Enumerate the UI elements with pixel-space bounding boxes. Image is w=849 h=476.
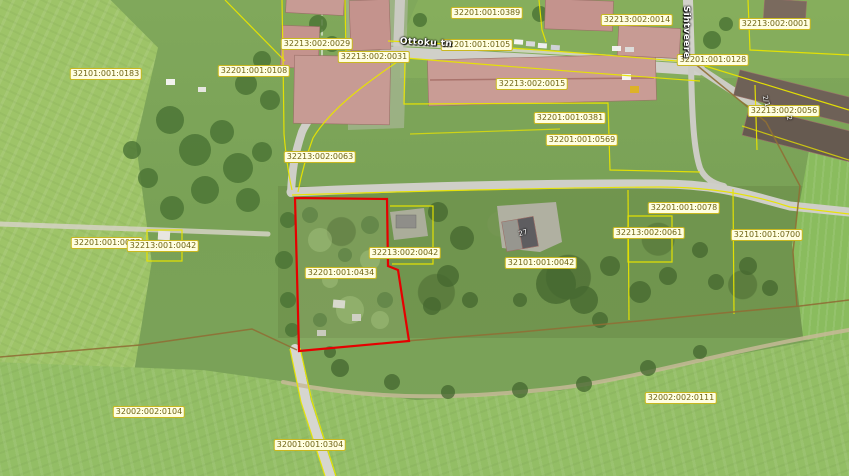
parcel-label: 32213:002:0029 — [281, 38, 353, 50]
parcel-label: 32213:002:0031 — [338, 51, 410, 63]
parcel-label: 32213:002:0001 — [739, 18, 811, 30]
parcel-label: 32201:001:0108 — [218, 65, 290, 77]
building-number-label: 27 — [518, 228, 529, 238]
parcel-label: 32201:001:0381 — [534, 112, 606, 124]
parcel-label: 32213:002:0061 — [613, 227, 685, 239]
labels-layer: 32201:001:038932213:002:001432213:002:00… — [0, 0, 849, 476]
parcel-label: 32213:002:0056 — [748, 105, 820, 117]
parcel-label: 32201:001:0389 — [451, 7, 523, 19]
parcel-label: 32213:002:0063 — [284, 151, 356, 163]
parcel-label: 32001:001:0304 — [274, 439, 346, 451]
parcel-label: 32201:001:0078 — [648, 202, 720, 214]
parcel-label: 32213:002:0015 — [496, 78, 568, 90]
parcel-label: 32213:002:0042 — [369, 247, 441, 259]
parcel-label: 32002:002:0111 — [645, 392, 717, 404]
building-number-label: 2 — [785, 115, 794, 121]
street-name-label: Ottoku tn — [400, 37, 453, 50]
building-number-label: 2/1 — [761, 95, 772, 108]
street-name-label: Sihtveere — [681, 6, 691, 59]
parcel-label: 32101:001:0042 — [505, 257, 577, 269]
parcel-label: 32201:001:0434 — [305, 267, 377, 279]
parcel-label: 32213:001:0042 — [127, 240, 199, 252]
parcel-label: 32101:001:0183 — [70, 68, 142, 80]
parcel-label: 32201:001:0569 — [546, 134, 618, 146]
parcel-label: 32002:002:0104 — [113, 406, 185, 418]
map-viewport[interactable]: 32201:001:038932213:002:001432213:002:00… — [0, 0, 849, 476]
parcel-label: 32213:002:0014 — [601, 14, 673, 26]
parcel-label: 32101:001:0700 — [731, 229, 803, 241]
